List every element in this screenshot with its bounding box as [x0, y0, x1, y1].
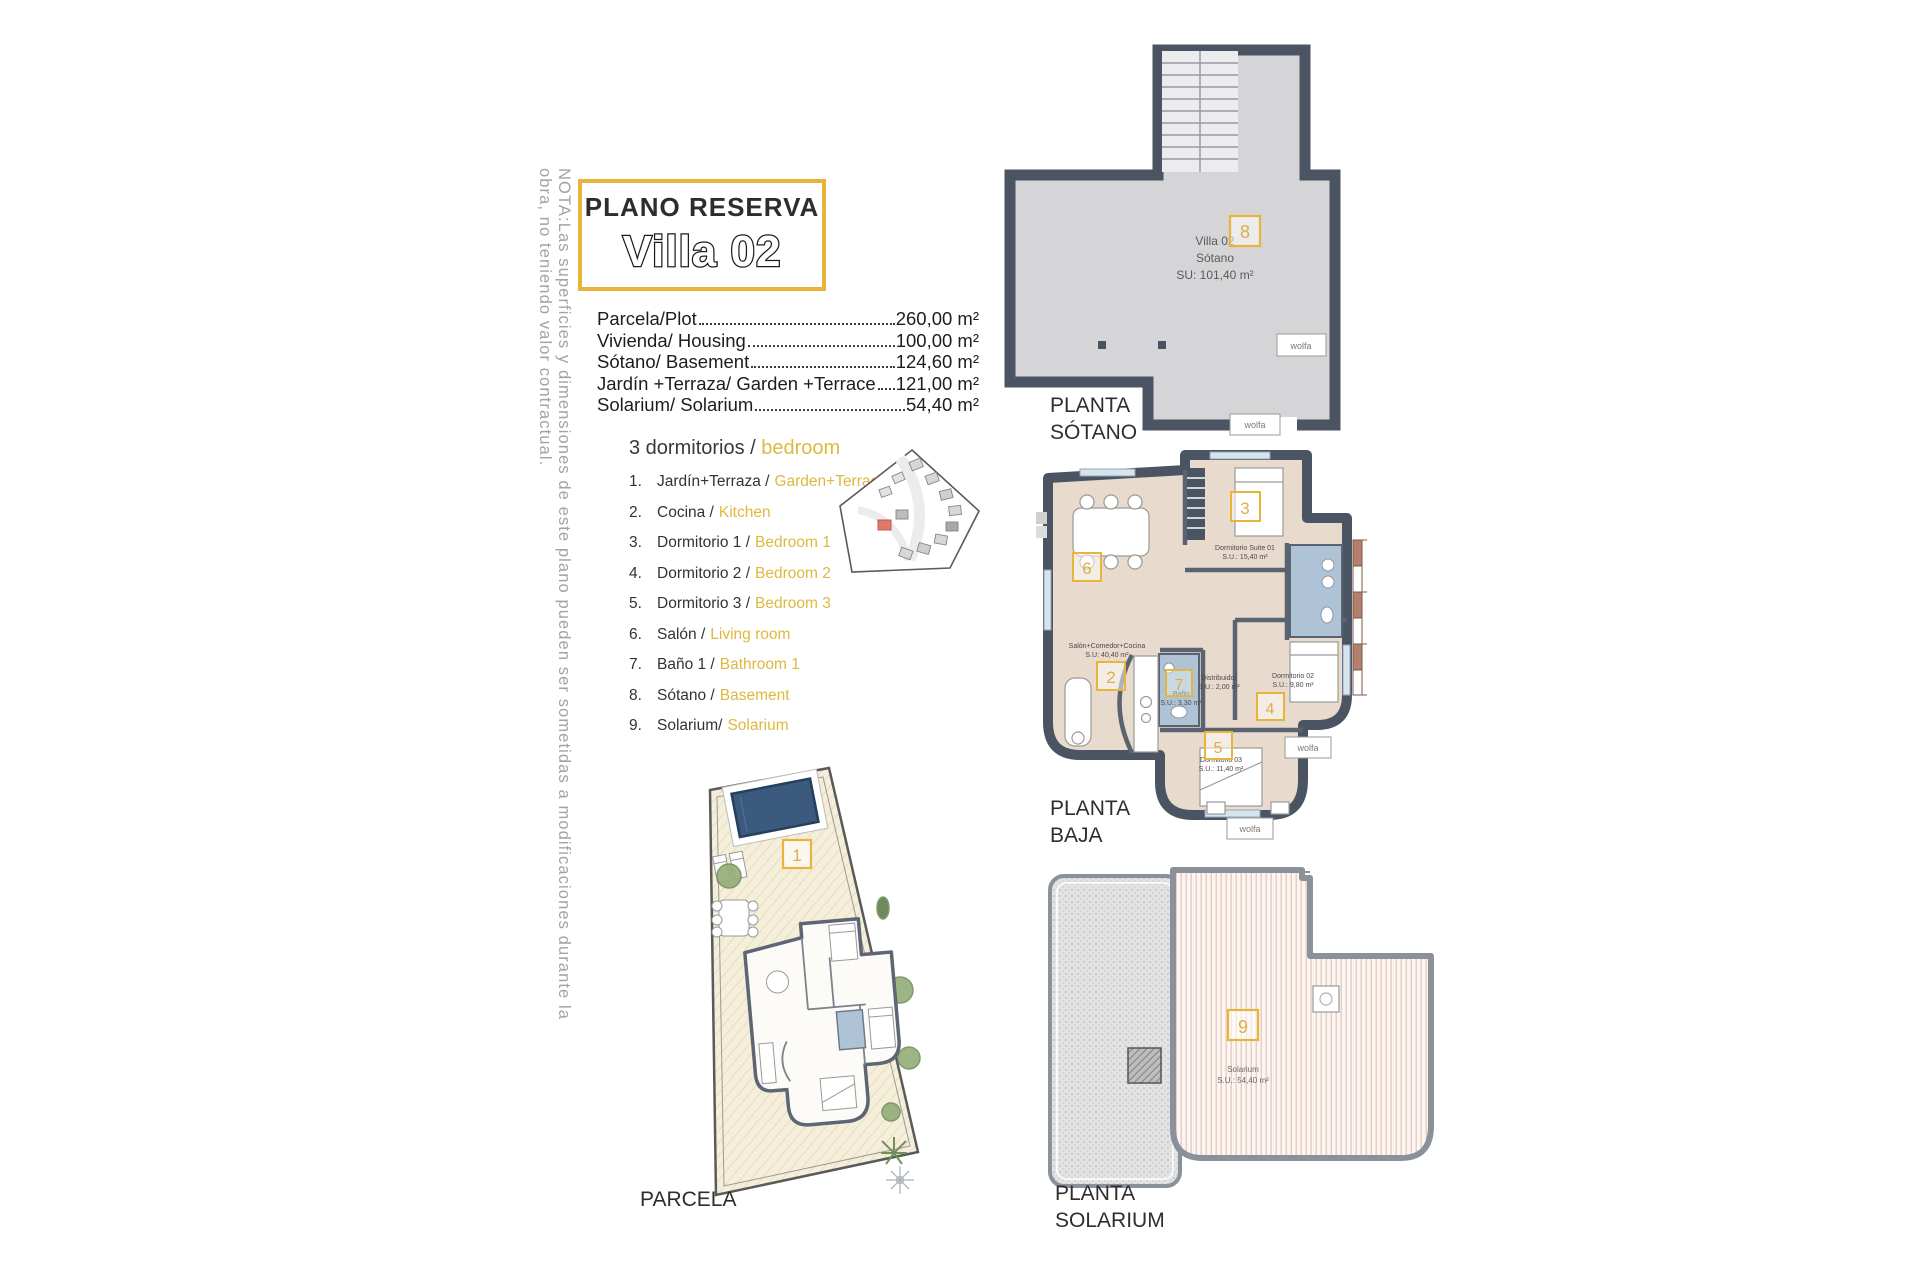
legend-item-number: 8. [629, 687, 657, 704]
legend-item-number: 7. [629, 656, 657, 673]
legend-item-en: Bedroom 3 [755, 595, 831, 612]
legend-item-en: Kitchen [719, 504, 771, 521]
title-box: PLANO RESERVA Villa 02 [578, 179, 826, 291]
svg-text:3: 3 [1240, 499, 1249, 518]
svg-text:S.U.: 15,40 m²: S.U.: 15,40 m² [1222, 554, 1268, 561]
legend-item-es: Jardín+Terraza / [657, 473, 769, 490]
svg-text:1: 1 [792, 846, 801, 865]
badge-6: 6 [1073, 553, 1101, 581]
dot-leader [699, 323, 895, 325]
suite-bathroom [1290, 545, 1342, 637]
dot-leader [748, 345, 895, 347]
svg-text:4: 4 [1266, 701, 1275, 718]
svg-text:7: 7 [1175, 677, 1184, 694]
basement-caption: PLANTA SÓTANO [1050, 392, 1137, 446]
builder-logo: wolfa [1285, 737, 1331, 758]
dot-leader [755, 409, 905, 411]
solarium-caption: PLANTA SOLARIUM [1055, 1180, 1165, 1234]
table-row: Jardín +Terraza/ Garden +Terrace 121,00 … [597, 373, 979, 395]
site-location-map [838, 448, 993, 588]
svg-text:SU: 101,40 m²: SU: 101,40 m² [1176, 268, 1253, 282]
svg-text:Solarium: Solarium [1227, 1065, 1259, 1074]
legend-item-en: Living room [710, 626, 790, 643]
svg-text:Distribuidor: Distribuidor [1201, 675, 1237, 682]
table-row: Solarium/ Solarium 54,40 m² [597, 394, 979, 416]
legend-item-number: 6. [629, 626, 657, 643]
row-value: 260,00 m² [896, 308, 979, 330]
svg-text:Dormitorio Suite 01: Dormitorio Suite 01 [1215, 545, 1275, 552]
badge-4: 4 [1257, 693, 1284, 720]
svg-text:Sótano: Sótano [1196, 251, 1234, 265]
badge-1: 1 [783, 840, 811, 868]
row-value: 100,00 m² [896, 330, 979, 352]
row-label: Sótano/ Basement [597, 351, 749, 373]
row-value: 124,60 m² [896, 351, 979, 373]
legend-item-en: Solarium [727, 717, 788, 734]
villa-title-outline: Villa 02 [595, 223, 809, 279]
row-value: 121,00 m² [896, 373, 979, 395]
svg-text:wolfa: wolfa [1296, 743, 1318, 753]
legend-item: 7. Baño 1 / Bathroom 1 [629, 656, 949, 673]
plot-caption: PARCELA [640, 1186, 736, 1213]
svg-text:9: 9 [1238, 1017, 1248, 1037]
badge-7: 7 [1166, 670, 1192, 696]
svg-text:S.U.: 2,00 m²: S.U.: 2,00 m² [1198, 684, 1240, 691]
legend-item-es: Solarium/ [657, 717, 722, 734]
villa-title: Villa 02 [623, 227, 782, 276]
legend-item-number: 9. [629, 717, 657, 734]
badge-8: 8 [1230, 216, 1260, 246]
row-label: Jardín +Terraza/ Garden +Terrace [597, 373, 876, 395]
svg-text:8: 8 [1240, 222, 1250, 242]
table-row: Sótano/ Basement 124,60 m² [597, 351, 979, 373]
row-label: Solarium/ Solarium [597, 394, 753, 416]
lower-roof [1050, 876, 1180, 1186]
highlighted-villa-marker [878, 520, 891, 530]
badge-3: 3 [1231, 492, 1260, 521]
legend-item-en: Bathroom 1 [720, 656, 800, 673]
legend-item-number: 2. [629, 504, 657, 521]
plan-kicker: PLANO RESERVA [585, 192, 820, 223]
builder-logo: wolfa [1277, 334, 1326, 356]
legend-item-es: Dormitorio 2 / [657, 565, 750, 582]
row-label: Vivienda/ Housing [597, 330, 746, 352]
section-ruler [1353, 540, 1367, 695]
row-label: Parcela/Plot [597, 308, 697, 330]
ground-floor-caption: PLANTA BAJA [1050, 795, 1130, 849]
legend-item-es: Dormitorio 3 / [657, 595, 750, 612]
badge-2: 2 [1097, 662, 1125, 690]
svg-text:S.U: 40,40 m²: S.U: 40,40 m² [1085, 652, 1129, 659]
legend-item-en: Basement [720, 687, 790, 704]
legend-item-en: Bedroom 2 [755, 565, 831, 582]
row-value: 54,40 m² [906, 394, 979, 416]
stair-shaft [1128, 1048, 1161, 1083]
dot-leader [751, 366, 894, 368]
surface-table: Parcela/Plot 260,00 m² Vivienda/ Housing… [597, 308, 979, 416]
badge-9: 9 [1228, 1010, 1258, 1040]
legend-item-en: Bedroom 1 [755, 534, 831, 551]
legend-item-es: Cocina / [657, 504, 714, 521]
legend-item-number: 5. [629, 595, 657, 612]
legend-item-number: 4. [629, 565, 657, 582]
svg-text:6: 6 [1082, 559, 1091, 578]
disclaimer-note: NOTA:Las superficies y dimensiones de es… [547, 168, 573, 1068]
svg-text:S.U.: 3,30 m²: S.U.: 3,30 m² [1160, 700, 1202, 707]
builder-logo: wolfa [1227, 818, 1273, 839]
svg-text:S.U.: 9,80 m²: S.U.: 9,80 m² [1272, 682, 1314, 689]
table-row: Parcela/Plot 260,00 m² [597, 308, 979, 330]
badge-5: 5 [1205, 732, 1232, 759]
legend-heading-es: 3 dormitorios / [629, 437, 756, 459]
plot-plan: 1 [695, 760, 940, 1212]
basement-floor-plan: Villa 02 Sótano SU: 101,40 m² 8 wolfa wo… [990, 35, 1360, 455]
legend-heading-en: bedroom [761, 437, 840, 459]
legend-item-es: Dormitorio 1 / [657, 534, 750, 551]
svg-text:wolfa: wolfa [1238, 824, 1260, 834]
legend-item-es: Sótano / [657, 687, 715, 704]
legend-item-number: 1. [629, 473, 657, 490]
builder-logo: wolfa [1230, 414, 1280, 435]
svg-text:S.U.: 54,40 m²: S.U.: 54,40 m² [1217, 1076, 1269, 1085]
compass-star [886, 1166, 914, 1194]
svg-text:wolfa: wolfa [1243, 420, 1265, 430]
svg-text:5: 5 [1214, 740, 1223, 757]
svg-text:wolfa: wolfa [1289, 341, 1311, 351]
legend-item: 5. Dormitorio 3 / Bedroom 3 [629, 595, 949, 612]
svg-text:Dormitorio 02: Dormitorio 02 [1272, 673, 1314, 680]
dot-leader [878, 388, 895, 390]
outdoor-dining-set [712, 900, 758, 937]
solarium-deck [1173, 870, 1431, 1158]
svg-text:S.U.: 11,40 m²: S.U.: 11,40 m² [1199, 766, 1244, 773]
legend-item-es: Baño 1 / [657, 656, 715, 673]
ground-floor-plan: Dormitorio Suite 01 S.U.: 15,40 m² Salón… [1035, 450, 1435, 850]
legend-item-number: 3. [629, 534, 657, 551]
svg-text:2: 2 [1106, 668, 1115, 687]
legend-item: 6. Salón / Living room [629, 626, 949, 643]
table-row: Vivienda/ Housing 100,00 m² [597, 330, 979, 352]
legend-item-es: Salón / [657, 626, 705, 643]
legend-item: 8. Sótano / Basement [629, 687, 949, 704]
legend-item: 9. Solarium/ Solarium [629, 717, 949, 734]
svg-text:Salón+Comedor+Cocina: Salón+Comedor+Cocina [1069, 643, 1146, 650]
